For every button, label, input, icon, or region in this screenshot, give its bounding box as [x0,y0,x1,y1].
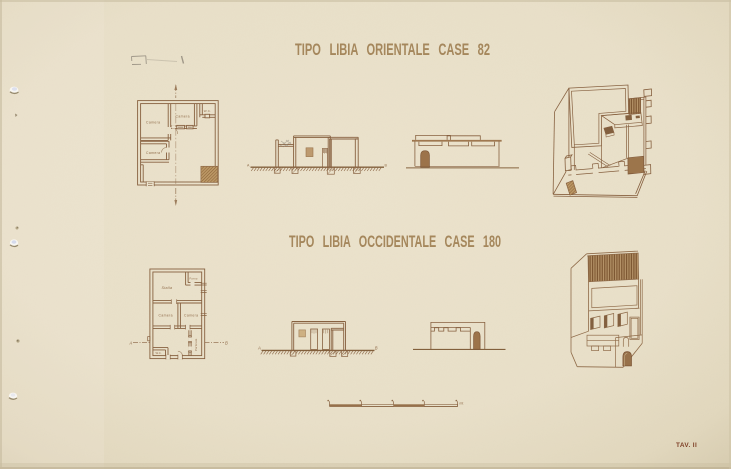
svg-text:mt: mt [460,402,464,406]
svg-text:Forno: Forno [190,277,198,281]
svg-text:Camera: Camera [146,121,160,125]
svg-text:TIPO LIBIA ORIENTALE CASE 82: TIPO LIBIA ORIENTALE CASE 82 [295,41,490,59]
svg-text:TAV. II: TAV. II [676,442,697,449]
svg-text:Camera: Camera [176,115,190,119]
svg-text:Porticato: Porticato [194,338,198,351]
svg-text:Camera: Camera [184,314,198,318]
svg-text:Camera: Camera [146,151,160,155]
svg-text:Camera: Camera [159,314,173,318]
svg-text:TIPO LIBIA OCCIDENTALE CASE 18: TIPO LIBIA OCCIDENTALE CASE 180 [289,233,501,251]
svg-text:A: A [257,346,261,351]
svg-text:B: B [375,346,378,351]
svg-text:W.C.: W.C. [204,109,211,113]
svg-text:W.C.: W.C. [156,351,162,355]
svg-text:Stalla: Stalla [162,286,173,290]
svg-text:B: B [225,340,228,345]
svg-text:A: A [129,340,133,345]
